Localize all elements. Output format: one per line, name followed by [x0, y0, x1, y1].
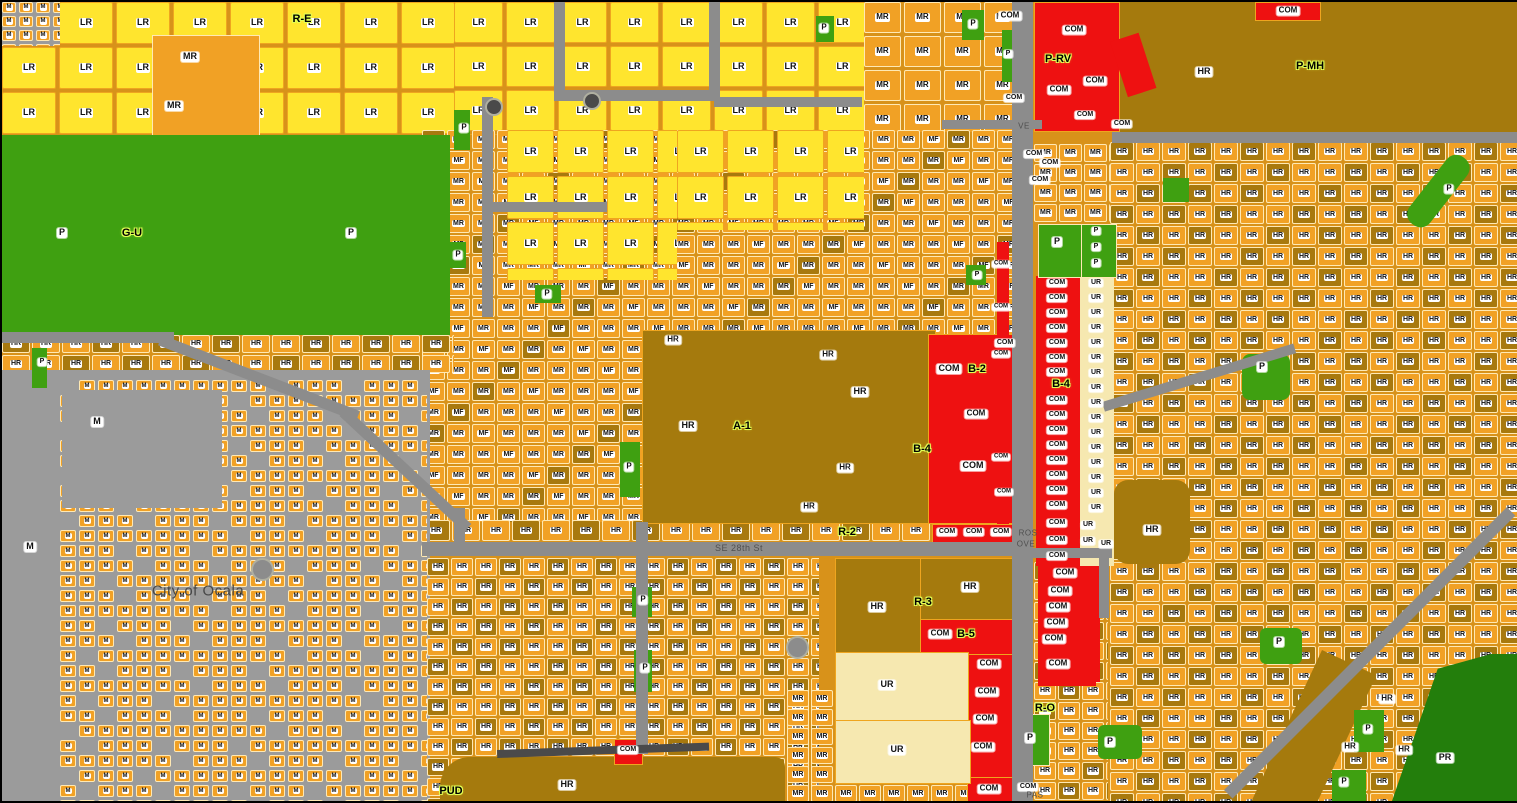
- parcel-code-label: M: [255, 533, 262, 539]
- parcel: M: [250, 470, 266, 482]
- parcel-code-label: HR: [1506, 295, 1517, 302]
- parcel: HR: [523, 598, 545, 616]
- parcel: HR: [787, 618, 809, 636]
- parcel: HR: [1396, 562, 1420, 581]
- parcel-code-label: LR: [836, 18, 850, 27]
- parcel-code-label: HR: [1402, 421, 1414, 428]
- parcel: HR: [1370, 520, 1394, 539]
- parcel-code-label: HR: [672, 623, 684, 630]
- parcel-code-label: HR: [1506, 358, 1517, 365]
- parcel-code-label: HR: [1194, 169, 1206, 176]
- parcel-code-label: M: [84, 773, 91, 779]
- parcel: M: [79, 755, 95, 767]
- parcel: HR: [1292, 457, 1316, 476]
- parcel-code-label: HR: [600, 563, 612, 570]
- parcel-code-label: HR: [1506, 169, 1517, 176]
- parcel: M: [288, 755, 304, 767]
- parcel-code-label: HR: [1376, 232, 1388, 239]
- parcel: MR: [647, 298, 670, 317]
- parcel: M: [402, 380, 418, 392]
- parcel-code-label: HR: [600, 703, 612, 710]
- parcel: M: [193, 560, 209, 572]
- parcel-code-label: HR: [1220, 757, 1232, 764]
- parcel: HR: [1422, 268, 1446, 287]
- parcel: HR: [1318, 415, 1342, 434]
- parcel-code-label: MF: [452, 157, 464, 164]
- parcel-code-label: HR: [1246, 547, 1258, 554]
- parcel-code-label: M: [388, 518, 395, 524]
- parcel: MR: [572, 382, 595, 401]
- parcel-code-label: M: [179, 608, 186, 614]
- parcel-code-label: HR: [792, 583, 804, 590]
- parcel: M: [155, 560, 171, 572]
- parcel: HR: [763, 598, 785, 616]
- parcel: LR: [59, 2, 113, 44]
- parcel-label: COM: [992, 454, 1010, 461]
- parcel: M: [174, 560, 190, 572]
- parcel: HR: [1474, 604, 1498, 623]
- parcel: LR: [454, 46, 503, 87]
- parcel: HR: [595, 598, 617, 616]
- parcel: HR: [1474, 247, 1498, 266]
- parcel-label: COM: [1075, 111, 1095, 119]
- parcel-code-label: LR: [472, 62, 486, 71]
- parcel: M: [383, 545, 399, 557]
- parcel-code-label: M: [65, 548, 72, 554]
- parcel: HR: [1422, 394, 1446, 413]
- parcel: M: [98, 725, 114, 737]
- parcel: M: [288, 470, 304, 482]
- parcel-code-label: HR: [1324, 253, 1336, 260]
- parcel-code-label: HR: [576, 663, 588, 670]
- parcel-code-label: M: [312, 623, 319, 629]
- parcel: HR: [739, 638, 761, 656]
- parcel-code-label: HR: [1246, 589, 1258, 596]
- parcel-code-label: MR: [502, 493, 515, 500]
- parcel-code-label: HR: [1402, 379, 1414, 386]
- parcel-code-label: MR: [927, 262, 940, 269]
- parcel: MR: [522, 424, 545, 443]
- parcel: M: [19, 16, 33, 27]
- parcel-code-label: M: [23, 4, 30, 10]
- parcel: HR: [1422, 520, 1446, 539]
- parcel: M: [155, 770, 171, 782]
- parcel-code-label: HR: [1246, 631, 1258, 638]
- parcel: M: [193, 755, 209, 767]
- parcel-code-label: HR: [400, 360, 412, 367]
- parcel-code-label: HR: [400, 340, 412, 347]
- parcel: M: [53, 2, 60, 13]
- parcel-code-label: HR: [720, 603, 732, 610]
- parcel-code-label: M: [312, 518, 319, 524]
- parcel-code-label: HR: [1324, 337, 1336, 344]
- parcel-code-label: HR: [672, 583, 684, 590]
- parcel-label: COM: [1047, 456, 1067, 464]
- parcel: HR: [1214, 520, 1238, 539]
- parcel: HR: [1292, 604, 1316, 623]
- parcel-code-label: HR: [1402, 736, 1414, 743]
- parcel: HR: [1396, 415, 1420, 434]
- parcel: HR: [1058, 722, 1080, 740]
- parcel: HR: [475, 638, 497, 656]
- parcel: MR: [1059, 204, 1082, 222]
- parcel: HR: [1396, 436, 1420, 455]
- parcel: M: [307, 740, 323, 752]
- parcel-code-label: M: [160, 548, 167, 554]
- parcel-code-label: HR: [1194, 295, 1206, 302]
- parcel-code-label: HR: [552, 643, 564, 650]
- parcel-code-label: M: [293, 668, 300, 674]
- parcel-code-label: M: [274, 488, 281, 494]
- parcel: HR: [427, 718, 449, 736]
- parcel: HR: [811, 618, 819, 636]
- parcel-code-label: MF: [477, 430, 489, 437]
- parcel-code-label: LR: [784, 62, 798, 71]
- parcel-code-label: M: [407, 518, 414, 524]
- parcel: HR: [1474, 457, 1498, 476]
- parcel-code-label: MR: [577, 304, 590, 311]
- parcel: MR: [972, 235, 995, 254]
- parcel-code-label: M: [255, 593, 262, 599]
- parcel: HR: [1474, 562, 1498, 581]
- parcel: MR: [572, 487, 595, 506]
- parcel: HR: [1292, 436, 1316, 455]
- parcel-code-label: HR: [744, 583, 756, 590]
- parcel-code-label: MF: [952, 325, 964, 332]
- parcel-label: P: [819, 24, 828, 33]
- parcel-code-label: MF: [927, 136, 939, 143]
- parcel: HR: [1292, 268, 1316, 287]
- parcel-label: COM: [618, 746, 638, 754]
- parcel-code-label: M: [369, 728, 376, 734]
- parcel: M: [269, 500, 285, 512]
- parcel: M: [79, 590, 95, 602]
- parcel-code-label: HR: [1087, 687, 1099, 694]
- parcel-code-label: M: [236, 668, 243, 674]
- parcel: MR: [722, 256, 745, 275]
- parcel-label: COM: [1084, 77, 1107, 86]
- parcel-code-label: HR: [456, 563, 468, 570]
- parcel-code-label: M: [407, 743, 414, 749]
- parcel-code-label: MF: [552, 493, 564, 500]
- parcel: M: [345, 440, 361, 452]
- parcel-code-label: M: [388, 593, 395, 599]
- parcel: M: [193, 785, 209, 797]
- parcel-code-label: MR: [1064, 209, 1077, 216]
- parcel: HR: [1370, 205, 1394, 224]
- parcel: HR: [1136, 184, 1160, 203]
- parcel: HR: [1474, 394, 1498, 413]
- parcel-code-label: MR: [952, 136, 965, 143]
- parcel-label: UR: [1089, 279, 1103, 287]
- parcel-code-label: M: [122, 788, 129, 794]
- district-label: P-RV: [1045, 53, 1071, 65]
- parcel: HR: [1370, 499, 1394, 518]
- parcel-code-label: MR: [952, 283, 965, 290]
- parcel: LR: [818, 46, 864, 87]
- parcel-label: COM: [1047, 426, 1067, 434]
- parcel-code-label: M: [369, 383, 376, 389]
- parcel: M: [326, 530, 342, 542]
- parcel: HR: [475, 558, 497, 576]
- parcel-code-label: MR: [452, 304, 465, 311]
- parcel-code-label: M: [84, 563, 91, 569]
- parcel: M: [231, 425, 247, 437]
- parcel: HR: [1214, 205, 1238, 224]
- parcel: HR: [427, 558, 449, 576]
- parcel: M: [212, 800, 228, 801]
- parcel-code-label: HR: [1063, 767, 1075, 774]
- parcel: M: [117, 785, 133, 797]
- parcel: M: [79, 605, 95, 617]
- parcel-code-label: HR: [1324, 610, 1336, 617]
- parcel-code-label: HR: [1220, 547, 1232, 554]
- parcel-code-label: MR: [627, 346, 640, 353]
- parcel: MR: [944, 36, 981, 67]
- parcel-code-label: HR: [1454, 211, 1466, 218]
- zoning-map-canvas[interactable]: MRMRMRMRMRMRMRMRMRMRMRMRMRMRMRMRLRLRLRLR…: [0, 0, 1517, 803]
- parcel-code-label: HR: [1428, 484, 1440, 491]
- parcel-code-label: HR: [456, 683, 468, 690]
- parcel-code-label: LR: [624, 193, 638, 202]
- parcel-code-label: HR: [1194, 484, 1206, 491]
- parcel-code-label: M: [236, 713, 243, 719]
- parcel-code-label: M: [407, 668, 414, 674]
- parcel-code-label: HR: [1298, 526, 1310, 533]
- parcel: M: [345, 560, 361, 572]
- parcel-code-label: HR: [1454, 484, 1466, 491]
- parcel: MR: [947, 172, 970, 191]
- parcel: HR: [1162, 205, 1186, 224]
- parcel-code-label: HR: [1220, 736, 1232, 743]
- parcel: HR: [739, 658, 761, 676]
- parcel-code-label: M: [331, 593, 338, 599]
- parcel-code-label: HR: [1350, 484, 1362, 491]
- parcel-code-label: HR: [432, 723, 444, 730]
- parcel-code-label: MR: [677, 283, 690, 290]
- parcel: M: [250, 740, 266, 752]
- parcel-code-label: HR: [1376, 778, 1388, 785]
- parcel: LR: [677, 176, 724, 219]
- parcel-label: UR: [1089, 324, 1103, 332]
- parcel: HR: [512, 520, 540, 541]
- parcel-code-label: HR: [696, 623, 708, 630]
- parcel: HR: [1162, 352, 1186, 371]
- parcel: M: [117, 650, 133, 662]
- parcel-code-label: HR: [1194, 778, 1206, 785]
- parcel-code-label: HR: [1220, 610, 1232, 617]
- parcel-label: P: [542, 290, 551, 299]
- parcel-code-label: M: [331, 728, 338, 734]
- parcel-code-label: M: [388, 668, 395, 674]
- parcel-code-label: M: [179, 788, 186, 794]
- parcel-code-label: HR: [672, 603, 684, 610]
- parcel: HR: [1500, 604, 1517, 623]
- parcel-label: COM: [1030, 176, 1050, 184]
- parcel-code-label: MR: [477, 388, 490, 395]
- parcel-code-label: HR: [600, 643, 612, 650]
- parcel-label: UR: [889, 745, 906, 755]
- parcel-code-label: M: [369, 713, 376, 719]
- parcel-code-label: HR: [432, 623, 444, 630]
- parcel: MR: [922, 256, 945, 275]
- parcel-label: COM: [1063, 26, 1086, 35]
- road-segment: [2, 332, 174, 343]
- parcel: M: [307, 650, 323, 662]
- parcel-code-label: M: [426, 413, 428, 419]
- parcel-label: HR: [801, 503, 817, 512]
- parcel: HR: [1292, 310, 1316, 329]
- parcel-label: HR: [559, 780, 576, 790]
- parcel: HR: [1344, 247, 1368, 266]
- parcel-code-label: HR: [1194, 337, 1206, 344]
- parcel: MR: [972, 193, 995, 212]
- parcel-label: P: [968, 20, 977, 29]
- parcel: HR: [1370, 415, 1394, 434]
- parcel: M: [269, 620, 285, 632]
- zone-parcel-block: [152, 35, 260, 137]
- parcel-code-label: MR: [977, 241, 990, 248]
- parcel: M: [60, 575, 76, 587]
- parcel-code-label: M: [179, 653, 186, 659]
- parcel-code-label: M: [312, 668, 319, 674]
- parcel: M: [402, 665, 418, 677]
- parcel: M: [79, 530, 95, 542]
- parcel-code-label: HR: [1376, 274, 1388, 281]
- parcel-label: HR: [1396, 746, 1412, 755]
- parcel-code-label: M: [141, 638, 148, 644]
- parcel: M: [345, 695, 361, 707]
- parcel-code-label: MF: [902, 199, 914, 206]
- parcel-code-label: M: [217, 743, 224, 749]
- parcel: LR: [827, 130, 864, 173]
- parcel-code-label: HR: [1272, 148, 1284, 155]
- district-label: B-2: [968, 363, 986, 375]
- parcel-code-label: HR: [1428, 295, 1440, 302]
- parcel-code-label: HR: [610, 527, 622, 534]
- parcel: HR: [571, 618, 593, 636]
- parcel-label: COM: [992, 261, 1010, 268]
- parcel: M: [98, 530, 114, 542]
- parcel-code-label: M: [236, 623, 243, 629]
- parcel-code-label: MR: [477, 409, 490, 416]
- parcel: M: [383, 590, 399, 602]
- parcel-code-label: HR: [1194, 652, 1206, 659]
- parcel: M: [421, 440, 427, 452]
- parcel-label: UR: [1089, 444, 1103, 452]
- parcel: MR: [787, 747, 809, 764]
- parcel-code-label: HR: [600, 663, 612, 670]
- parcel-code-label: MR: [840, 790, 853, 797]
- parcel: HR: [499, 718, 521, 736]
- parcel: MF: [572, 340, 595, 359]
- parcel: MR: [597, 319, 620, 338]
- parcel-code-label: MF: [977, 178, 989, 185]
- parcel: HR: [1240, 289, 1264, 308]
- parcel: M: [307, 515, 323, 527]
- parcel: HR: [1240, 457, 1264, 476]
- parcel: MR: [787, 728, 809, 745]
- parcel: HR: [1082, 762, 1104, 780]
- parcel: M: [421, 455, 427, 467]
- parcel-code-label: M: [84, 758, 91, 764]
- parcel: HR: [1188, 499, 1212, 518]
- parcel: M: [155, 635, 171, 647]
- parcel-code-label: M: [160, 623, 167, 629]
- parcel: MR: [597, 340, 620, 359]
- parcel: HR: [499, 698, 521, 716]
- parcel-code-label: HR: [1506, 526, 1517, 533]
- parcel-code-label: HR: [600, 623, 612, 630]
- parcel: MR: [944, 70, 981, 101]
- parcel-code-label: HR: [528, 583, 540, 590]
- parcel-code-label: HR: [1220, 190, 1232, 197]
- parcel: HR: [1448, 289, 1472, 308]
- parcel: MR: [522, 340, 545, 359]
- parcel: LR: [657, 268, 677, 280]
- parcel-code-label: HR: [1194, 274, 1206, 281]
- parcel: HR: [1318, 499, 1342, 518]
- parcel-label: COM: [1112, 120, 1132, 128]
- parcel-code-label: HR: [1116, 463, 1128, 470]
- parcel-code-label: MF: [602, 283, 614, 290]
- parcel-code-label: MR: [902, 262, 915, 269]
- parcel: HR: [811, 578, 819, 596]
- parcel: M: [383, 800, 399, 801]
- parcel: LR: [506, 2, 555, 43]
- parcel-code-label: HR: [1376, 358, 1388, 365]
- parcel: HR: [1370, 793, 1394, 801]
- parcel: HR: [715, 618, 737, 636]
- parcel-code-label: M: [160, 638, 167, 644]
- parcel: M: [155, 680, 171, 692]
- parcel: HR: [1448, 205, 1472, 224]
- parcel-code-label: HR: [1506, 274, 1517, 281]
- parcel: HR: [571, 658, 593, 676]
- parcel: HR: [547, 678, 569, 696]
- parcel-label: COM: [937, 528, 957, 536]
- parcel: M: [136, 605, 152, 617]
- parcel: HR: [1188, 352, 1212, 371]
- parcel: HR: [1500, 205, 1517, 224]
- parcel-code-label: M: [198, 698, 205, 704]
- parcel: MF: [847, 235, 870, 254]
- parcel-code-label: M: [179, 728, 186, 734]
- parcel-code-label: M: [198, 383, 205, 389]
- parcel-code-label: M: [331, 518, 338, 524]
- parcel: M: [421, 530, 427, 542]
- parcel: MF: [772, 256, 795, 275]
- parcel-code-label: HR: [432, 743, 444, 750]
- parcel: M: [364, 665, 380, 677]
- parcel-code-label: M: [65, 743, 72, 749]
- parcel-code-label: M: [179, 773, 186, 779]
- parcel-code-label: M: [407, 383, 414, 389]
- parcel-code-label: M: [293, 458, 300, 464]
- parcel: HR: [1396, 457, 1420, 476]
- parcel: M: [364, 710, 380, 722]
- parcel-code-label: HR: [768, 583, 780, 590]
- parcel: M: [307, 800, 323, 801]
- parcel-code-label: HR: [1402, 337, 1414, 344]
- parcel-code-label: LR: [22, 63, 36, 72]
- parcel: MR: [811, 747, 833, 764]
- parcel: HR: [1266, 184, 1290, 203]
- parcel-code-label: HR: [490, 527, 502, 534]
- parcel-code-label: HR: [600, 583, 612, 590]
- parcel: HR: [691, 598, 713, 616]
- parcel-code-label: HR: [1324, 589, 1336, 596]
